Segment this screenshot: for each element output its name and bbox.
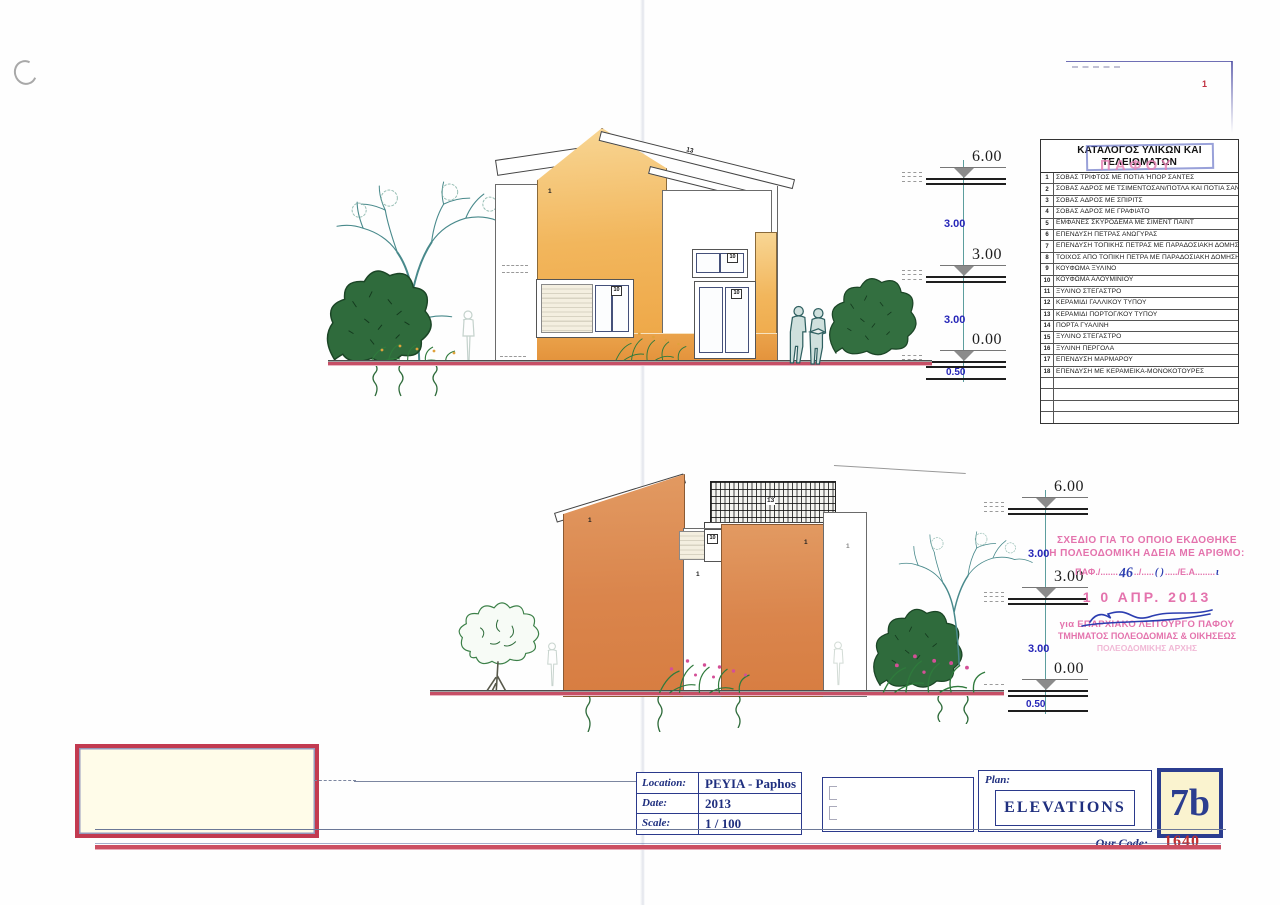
opening-tag: 10 xyxy=(727,253,738,263)
door-pane xyxy=(699,287,723,353)
materials-row: 7ΕΠΕΝΔΥΣΗ ΤΟΠΙΚΗΣ ΠΕΤΡΑΣ ΜΕ ΠΑΡΑΔΟΣΙΑΚΗ … xyxy=(1041,241,1238,252)
approval-stamp: ΣΧΕΔΙΟ ΓΙΑ ΤΟ ΟΠΟΙΟ ΕΚΔΟΘΗΚΕ Η ΠΟΛΕΟΔΟΜΙ… xyxy=(1046,534,1248,654)
wall-material-tag: 1 xyxy=(804,540,808,547)
materials-row xyxy=(1041,412,1238,422)
building-edge-line xyxy=(777,186,778,363)
window-pane xyxy=(696,253,720,273)
root-icon xyxy=(961,694,971,724)
datum-triangle-icon xyxy=(1036,680,1056,690)
flower-shrub-icon xyxy=(872,638,1002,695)
materials-row xyxy=(1041,389,1238,400)
fold-line xyxy=(640,0,645,905)
sheet-number-box: 7b xyxy=(1157,768,1223,838)
column-dash xyxy=(502,272,528,273)
info-table-divider xyxy=(698,773,699,834)
materials-row: 1ΣΟΒΑΣ ΤΡΙΦΤΟΣ ΜΕ ΠΟΤΙΑ ΉΠΟΡ ΣΑΝΤΕΣ xyxy=(1041,173,1238,184)
flower-shrub-icon xyxy=(648,645,766,695)
materials-row xyxy=(1041,401,1238,412)
glazed-door xyxy=(694,281,756,359)
stamp-ref-line: ΠΑΦ./.......46../.....( )...../Ε.Α......… xyxy=(1046,564,1248,580)
wall-material-tag: 1 xyxy=(696,572,700,579)
base-line xyxy=(926,378,1006,380)
bracket-mark xyxy=(829,806,837,820)
marker-dashes xyxy=(902,351,922,360)
bracket-mark xyxy=(829,786,837,800)
shutter-slats xyxy=(541,284,593,333)
materials-rows: 1ΣΟΒΑΣ ΤΡΙΦΤΟΣ ΜΕ ΠΟΤΙΑ ΉΠΟΡ ΣΑΝΤΕΣ2ΣΟΒΑ… xyxy=(1041,173,1238,423)
leafy-tree-icon xyxy=(450,592,550,696)
handwritten-number: 46 xyxy=(1118,566,1133,583)
materials-row: 10ΚΟΥΦΩΜΑ ΑΛΟΥΜΙΝΙΟΥ xyxy=(1041,276,1238,287)
faint-figure-icon xyxy=(541,636,563,694)
level-marker-6: 6.00 xyxy=(1008,482,1088,518)
opening-tag: 10 xyxy=(731,289,742,299)
datum-triangle-icon xyxy=(954,168,974,178)
stamp-line-2: Η ΠΟΛΕΟΔΟΜΙΚΗ ΑΔΕΙΑ ΜΕ ΑΡΙΘΜΟ: xyxy=(1046,547,1248,560)
info-table: Location: PEYIA - Paphos Date: 2013 Scal… xyxy=(636,772,802,835)
info-table-row-line xyxy=(637,793,801,794)
stamp-for-line-3: ΠΟΛΕΟΔΟΜΙΚΗΣ ΑΡΧΗΣ xyxy=(1046,643,1248,654)
red-band xyxy=(95,845,1221,849)
materials-row: 9ΚΟΥΦΩΜΑ ΞΥΛΙΝΟ xyxy=(1041,264,1238,275)
column-dash xyxy=(502,265,528,266)
sheet-frame-top xyxy=(1066,61,1232,62)
materials-row: 2ΣΟΒΑΣ ΑΔΡΟΣ ΜΕ ΤΣΙΜΕΝΤΟΣΑΝ/ΠΟΤΛΑ ΚΑΙ ΠΟ… xyxy=(1041,184,1238,195)
vent-slats xyxy=(679,531,705,560)
rear-roof-line xyxy=(834,465,966,474)
level-marker-0: 0.00 xyxy=(1008,664,1088,700)
roof-material-tag: 13 xyxy=(766,498,775,505)
wall-material-tag: 1 xyxy=(548,189,552,196)
materials-row: 15ΞΥΛΙΝΟ ΣΤΕΓΑΣΤΡΟ xyxy=(1041,332,1238,343)
scale-label: Scale: xyxy=(642,817,670,829)
punch-mark xyxy=(10,57,40,88)
architect-cell xyxy=(822,777,974,832)
materials-row: 11ΞΥΛΙΝΟ ΣΤΕΓΑΣΤΡΟ xyxy=(1041,287,1238,298)
drawing-sheet: 1 xyxy=(0,0,1280,905)
pafou-stamp-text: ΠΑΦΟΥ xyxy=(1100,157,1175,174)
red-band-shadow xyxy=(95,849,1221,850)
front-shrub-icon xyxy=(608,320,698,365)
level-marker-3: 3.00 xyxy=(926,250,1006,286)
people-icon xyxy=(785,305,833,365)
stamp-line-1: ΣΧΕΔΙΟ ΓΙΑ ΤΟ ΟΠΟΙΟ ΕΚΔΟΘΗΚΕ xyxy=(1046,534,1248,547)
materials-row xyxy=(1041,378,1238,389)
sheet-frame-right xyxy=(1231,61,1233,133)
level-marker-6: 6.00 xyxy=(926,152,1006,188)
red-band-top-edge xyxy=(95,843,1221,844)
wall-material-tag: 1 xyxy=(846,544,850,551)
materials-row: 8ΤΟΙΧΟΣ ΑΠΟ ΤΟΠΙΚΗ ΠΕΤΡΑ ΜΕ ΠΑΡΑΔΟΣΙΑΚΗ … xyxy=(1041,253,1238,264)
location-label: Location: xyxy=(642,777,686,789)
stamp-for-line-2: ΤΜΗΜΑΤΟΣ ΠΟΛΕΟΔΟΜΙΑΣ & ΟΙΚΗΣΕΩΣ xyxy=(1046,631,1248,643)
date-label: Date: xyxy=(642,797,667,809)
opening-tag: 10 xyxy=(611,286,622,296)
location-value: PEYIA - Paphos xyxy=(705,776,796,792)
sheet-frame-dashes xyxy=(1072,66,1120,68)
base-dimension: 0.50 xyxy=(1026,699,1045,710)
info-table-row-line xyxy=(637,813,801,814)
root-icon xyxy=(430,364,440,397)
materials-row: 13ΚΕΡΑΜΙΔΙ ΠΟΡΤΟΓ/ΚΟΥ ΤΥΠΟΥ xyxy=(1041,310,1238,321)
date-value: 2013 xyxy=(705,796,731,812)
materials-row: 17ΕΠΕΝΔΥΣΗ ΜΑΡΜΑΡΟΥ xyxy=(1041,355,1238,366)
datum-triangle-icon xyxy=(954,266,974,276)
materials-row: 12ΚΕΡΑΜΙΔΙ ΓΑΛΛΙΚΟΥ ΤΥΠΟΥ xyxy=(1041,298,1238,309)
leader-line xyxy=(354,781,638,782)
roof-material-tag: 13 xyxy=(685,147,694,155)
sheet-number: 7b xyxy=(1170,784,1210,822)
materials-table: ΚΑΤΑΛΟΓΟΣ ΥΛΙΚΩΝ ΚΑΙ ΤΕΛΕΙΩΜΑΤΩΝ 1ΣΟΒΑΣ … xyxy=(1040,139,1239,424)
handwritten-paren: ( ) xyxy=(1155,567,1164,578)
root-icon xyxy=(655,694,665,732)
root-icon xyxy=(583,694,593,732)
storey-dimension: 3.00 xyxy=(944,314,965,326)
marker-dashes xyxy=(984,498,1004,512)
materials-row: 16ΞΥΛΙΝΗ ΠΕΡΓΟΛΑ xyxy=(1041,344,1238,355)
root-icon xyxy=(370,364,380,397)
plan-label: Plan: xyxy=(985,774,1010,786)
storey-dimension: 3.00 xyxy=(944,218,965,230)
datum-triangle-icon xyxy=(954,351,974,361)
plan-value: ELEVATIONS xyxy=(1004,799,1126,817)
level-marker-0: 0.00 xyxy=(926,335,1006,371)
base-dimension: 0.50 xyxy=(946,367,965,378)
marker-dashes xyxy=(902,168,922,182)
marker-dashes xyxy=(902,266,922,280)
faint-figure-icon xyxy=(455,310,481,364)
materials-row: 4ΣΟΒΑΣ ΑΔΡΟΣ ΜΕ ΓΡΑΦΙΑΤΟ xyxy=(1041,207,1238,218)
signature-icon xyxy=(1072,600,1222,632)
materials-row: 3ΣΟΒΑΣ ΑΔΡΟΣ ΜΕ ΣΠΙΡΙΤΣ xyxy=(1041,196,1238,207)
plan-cell: Plan: ELEVATIONS xyxy=(978,770,1152,832)
materials-row: 14ΠΟΡΤΑ ΓΥΑΛΙΝΗ xyxy=(1041,321,1238,332)
architect-stamp-box xyxy=(75,744,319,838)
corner-mark: 1 xyxy=(1202,79,1207,89)
root-icon xyxy=(396,364,406,397)
root-icon xyxy=(935,694,945,722)
opening-tag: 10 xyxy=(707,534,718,544)
materials-row: 5ΕΜΦΑΝΕΣ ΣΚΥΡΟΔΕΜΑ ΜΕ ΣΙΜΕΝΤ ΠΑΙΝΤ xyxy=(1041,219,1238,230)
column-dash xyxy=(500,356,526,357)
base-line xyxy=(1008,710,1088,712)
root-icon xyxy=(733,694,743,728)
materials-row: 18ΕΠΕΝΔΥΣΗ ΜΕ ΚΕΡΑΜΕΙΚΑ-ΜΟΝΟΚΟΤΟΥΡΕΣ xyxy=(1041,367,1238,378)
materials-row: 6ΕΠΕΝΔΥΣΗ ΠΕΤΡΑΣ ΑΝΩΓΥΡΑΣ xyxy=(1041,230,1238,241)
faint-figure-icon xyxy=(827,634,849,694)
titleblock-bottom-line xyxy=(95,829,1226,830)
marker-dashes xyxy=(984,588,1004,602)
clerestory-window xyxy=(692,249,748,278)
leader-dashes xyxy=(314,780,356,781)
wall-material-tag: 1 xyxy=(588,518,592,525)
datum-triangle-icon xyxy=(1036,498,1056,508)
handwritten-tick: ι xyxy=(1216,567,1219,578)
